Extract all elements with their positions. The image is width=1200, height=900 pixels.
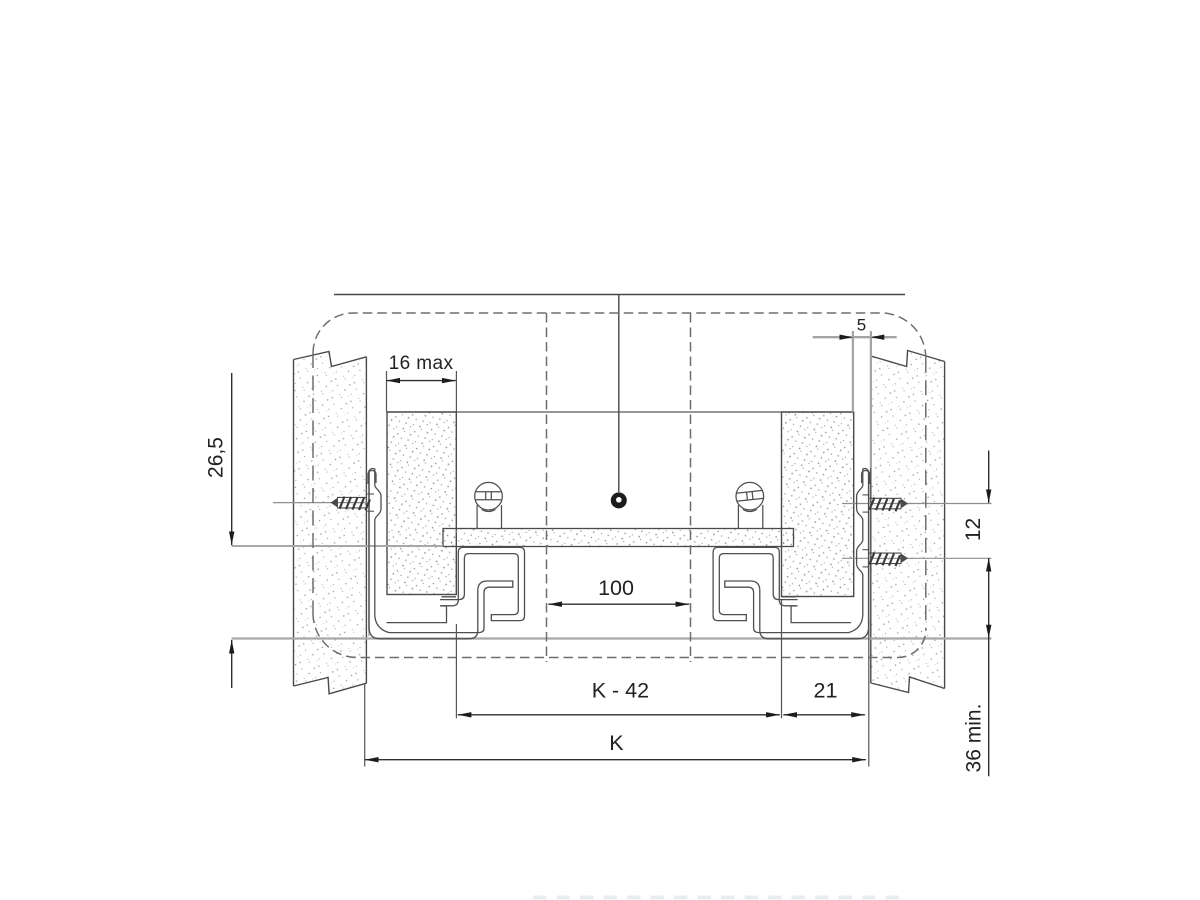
svg-text:21: 21: [814, 679, 838, 703]
svg-text:26,5: 26,5: [205, 437, 228, 478]
svg-text:12: 12: [962, 518, 985, 541]
svg-text:16 max: 16 max: [389, 353, 454, 374]
svg-text:5: 5: [857, 316, 866, 335]
svg-text:36 min.: 36 min.: [963, 704, 986, 773]
svg-text:K: K: [609, 731, 624, 755]
svg-text:K - 42: K - 42: [592, 679, 649, 703]
svg-text:100: 100: [598, 576, 634, 600]
